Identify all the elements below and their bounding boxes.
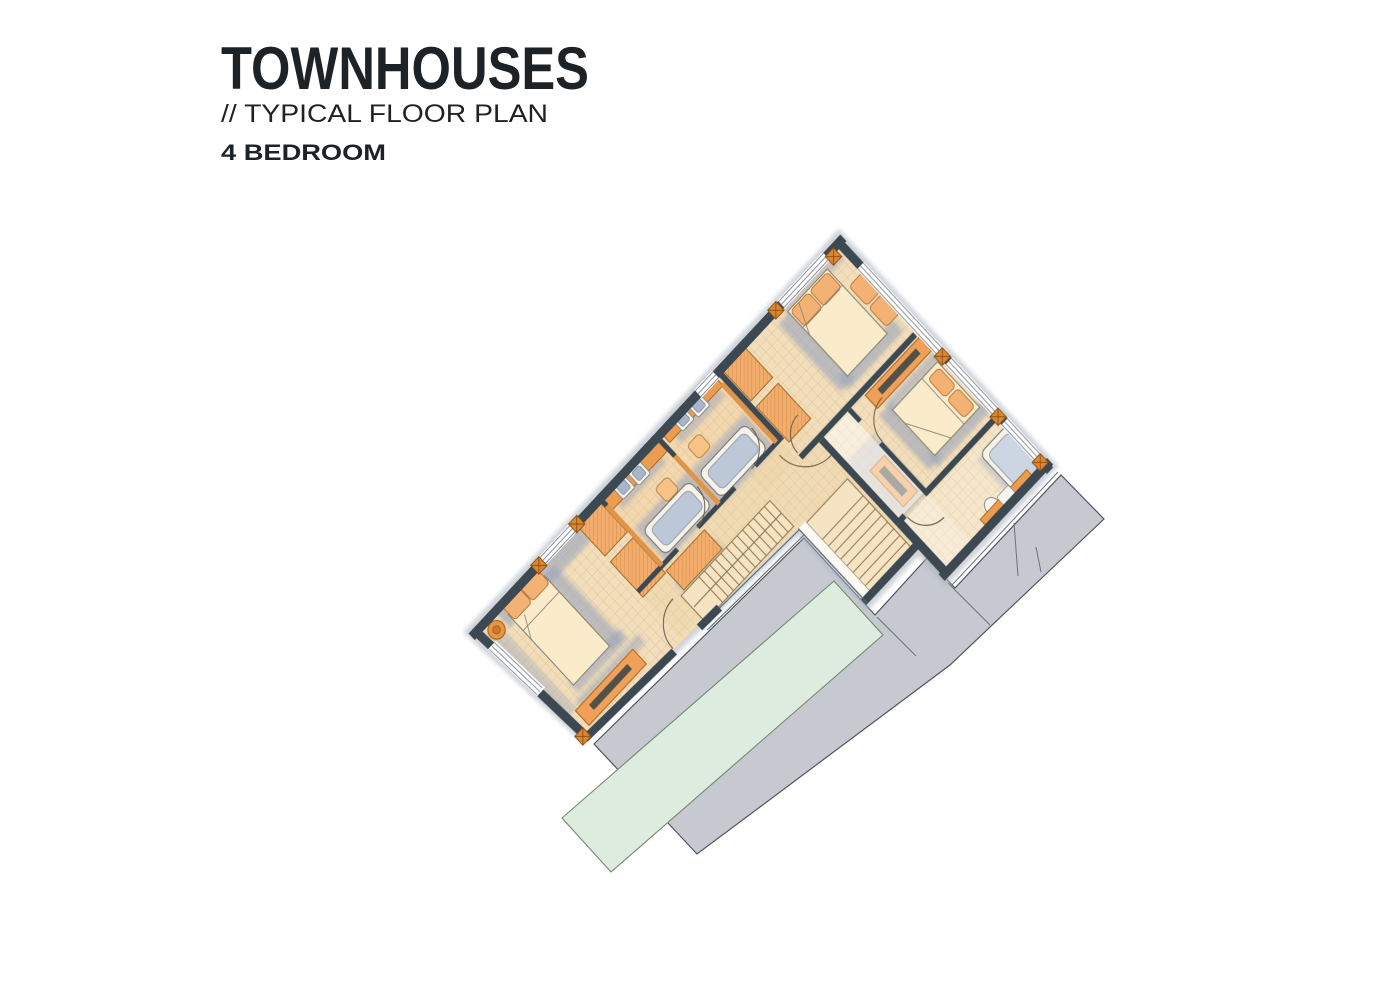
svg-text:// TYPICAL FLOOR PLAN: // TYPICAL FLOOR PLAN: [221, 100, 548, 128]
svg-text:TOWNHOUSES: TOWNHOUSES: [221, 35, 589, 102]
svg-text:4 BEDROOM: 4 BEDROOM: [221, 140, 386, 165]
